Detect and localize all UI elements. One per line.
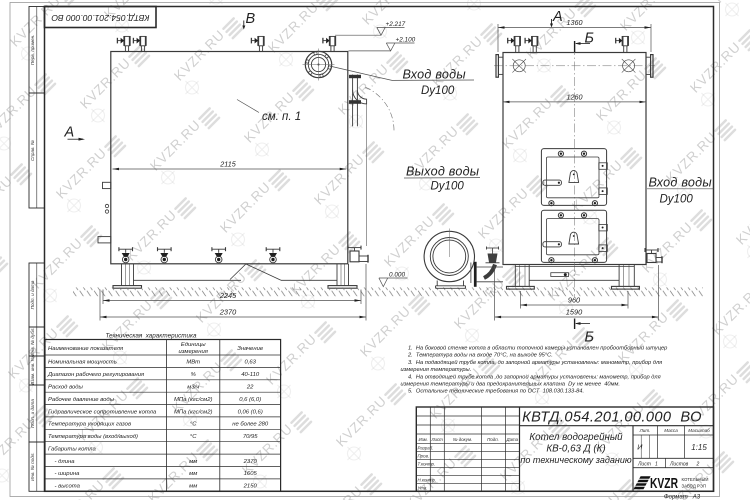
svg-text:KVZR.RU: KVZR.RU (499, 95, 555, 151)
svg-text:измерения температуры.: измерения температуры. (401, 367, 472, 373)
svg-text:Габариты котла: Габариты котла (48, 446, 96, 452)
svg-text:Разраб.: Разраб. (418, 445, 434, 450)
svg-text:МПа (кгс/см2): МПа (кгс/см2) (174, 397, 213, 403)
svg-text:Вход воды: Вход воды (649, 176, 713, 190)
svg-text:Dy100: Dy100 (660, 194, 694, 206)
svg-text:МПа (кгс/см2): МПа (кгс/см2) (174, 409, 213, 415)
svg-text:Температура воды (вход/выход): Температура воды (вход/выход) (48, 434, 138, 440)
svg-text:KVZR.RU: KVZR.RU (709, 281, 750, 337)
svg-text:Инв. № подл.: Инв. № подл. (30, 452, 35, 481)
svg-text:KVZR.RU: KVZR.RU (615, 309, 671, 365)
svg-text:Инв. № дубл.: Инв. № дубл. (30, 327, 35, 355)
svg-text:1605: 1605 (244, 471, 258, 477)
svg-text:22: 22 (246, 385, 254, 391)
svg-text:40-110: 40-110 (241, 372, 260, 378)
svg-text:Выход воды: Выход воды (406, 165, 480, 179)
svg-text:2115: 2115 (219, 160, 236, 169)
svg-text:KVZR.RU: KVZR.RU (171, 27, 227, 83)
svg-text:4. На отводящей трубе котла ,: 4. На отводящей трубе котла ,до запорной… (408, 373, 661, 380)
svg-text:измерения: измерения (178, 349, 208, 355)
svg-text:1:15: 1:15 (691, 443, 707, 452)
svg-text:А: А (552, 9, 563, 25)
svg-text:KVZR.RU: KVZR.RU (593, 67, 649, 123)
svg-text:Наименование показателя: Наименование показателя (48, 346, 124, 352)
svg-text:2150: 2150 (243, 484, 258, 490)
svg-text:Дата: Дата (506, 437, 519, 442)
svg-text:KVZR.RU: KVZR.RU (523, 5, 579, 61)
svg-text:КВТД.054.201.00.000 ВО: КВТД.054.201.00.000 ВО (51, 13, 149, 23)
svg-text:KVZR.RU: KVZR.RU (0, 173, 16, 229)
svg-text:Техническая характеристика: Техническая характеристика (106, 333, 197, 340)
svg-text:Котел водогрейный: Котел водогрейный (529, 432, 623, 443)
svg-text:2. Температура воды на входе: 2. Температура воды на входе 70°С, на вы… (407, 353, 553, 359)
svg-text:°С: °С (190, 422, 197, 428)
svg-text:измерения температуры и два пр: измерения температуры и два предохраните… (401, 382, 620, 388)
svg-text:2370: 2370 (219, 308, 237, 317)
svg-text:1. На боковой стенке котла в: 1. На боковой стенке котла в области топ… (408, 345, 667, 352)
svg-text:KVZR.RU: KVZR.RU (265, 0, 321, 56)
svg-text:1260: 1260 (567, 92, 583, 101)
svg-text:мм: мм (189, 459, 197, 465)
svg-text:1590: 1590 (566, 308, 583, 317)
svg-text:KVZR.RU: KVZR.RU (733, 191, 750, 247)
svg-text:№ докум.: № докум. (453, 437, 472, 442)
svg-text:70/95: 70/95 (243, 434, 258, 440)
svg-text:не более 280: не более 280 (232, 422, 269, 428)
svg-text:0,6 (6,0): 0,6 (6,0) (239, 397, 261, 403)
svg-text:Dy100: Dy100 (431, 181, 465, 193)
svg-text:КВТД.054.201.00.000 ВО: КВТД.054.201.00.000 ВО (522, 410, 702, 426)
svg-text:%: % (191, 372, 196, 378)
svg-text:Единицы: Единицы (181, 342, 206, 348)
svg-text:KVZR.RU: KVZR.RU (451, 275, 507, 331)
svg-text:KVZR.RU: KVZR.RU (333, 393, 389, 449)
svg-text:м3/ч: м3/ч (187, 385, 199, 391)
svg-text:Номинальная мощность: Номинальная мощность (48, 360, 117, 366)
svg-text:Б: Б (585, 330, 594, 346)
svg-text:Масштаб: Масштаб (688, 428, 710, 433)
svg-text:Рабочее давление воды: Рабочее давление воды (48, 397, 115, 403)
svg-text:Изм.: Изм. (419, 437, 428, 442)
svg-text:Диапазон рабочего регулировани: Диапазон рабочего регулирования (47, 372, 145, 378)
svg-text:KVZR.RU: KVZR.RU (0, 83, 40, 139)
svg-text:Т.контр.: Т.контр. (418, 461, 436, 466)
svg-text:KVZR.RU: KVZR.RU (687, 39, 743, 95)
svg-text:А: А (64, 125, 75, 141)
svg-text:KVZR.RU: KVZR.RU (53, 145, 109, 201)
svg-text:И: И (637, 443, 643, 452)
svg-text:2245: 2245 (219, 291, 237, 300)
svg-text:KVZR.RU: KVZR.RU (123, 207, 179, 263)
svg-text:Б: Б (585, 31, 594, 47)
svg-text:В: В (246, 11, 256, 27)
svg-text:- длина: - длина (48, 459, 75, 465)
svg-text:Лит.: Лит. (639, 428, 651, 433)
svg-text:Лист 1: Лист 1 (637, 462, 658, 468)
svg-text:Взам. инв. №: Взам. инв. № (30, 356, 35, 384)
svg-text:Температура уходящих газов: Температура уходящих газов (48, 422, 131, 428)
svg-text:Подп. и дата: Подп. и дата (30, 280, 35, 309)
svg-text:КОТЕЛЬНЫЙ: КОТЕЛЬНЫЙ (682, 477, 709, 482)
svg-text:1360: 1360 (567, 18, 583, 27)
svg-text:2370: 2370 (243, 459, 258, 465)
svg-text:Справ. №: Справ. № (30, 140, 35, 161)
svg-text:мм: мм (189, 471, 197, 477)
svg-text:Подп.: Подп. (487, 437, 499, 442)
svg-text:Пров.: Пров. (418, 453, 430, 458)
svg-text:Н.контр.: Н.контр. (418, 477, 437, 482)
svg-text:+2.217: +2.217 (386, 21, 406, 28)
svg-text:KVZR.RU: KVZR.RU (7, 0, 63, 50)
svg-text:KVZR.RU: KVZR.RU (311, 151, 367, 207)
svg-text:Лист: Лист (431, 437, 444, 442)
svg-text:KVZR.RU: KVZR.RU (639, 219, 695, 275)
svg-text:Формат А3: Формат А3 (664, 495, 701, 500)
svg-text:Расход воды: Расход воды (48, 385, 84, 391)
svg-text:ЗАВОД РЭП: ЗАВОД РЭП (682, 484, 707, 489)
svg-text:Масса: Масса (664, 428, 678, 433)
svg-text:KVZR: KVZR (650, 476, 678, 492)
svg-text:5. Остальные технические треб: 5. Остальные технические требования по О… (408, 389, 584, 395)
svg-text:Вход воды: Вход воды (403, 68, 467, 82)
svg-text:по техническому заданию: по техническому заданию (520, 455, 631, 465)
svg-text:мм: мм (189, 484, 197, 490)
svg-text:°С: °С (190, 434, 197, 440)
svg-text:МВт: МВт (186, 360, 200, 366)
svg-text:Dy100: Dy100 (421, 85, 455, 97)
svg-text:3. На подводящей трубе котла,: 3. На подводящей трубе котла, до запорно… (408, 359, 662, 366)
svg-text:Значение: Значение (237, 346, 264, 352)
svg-text:KVZR.RU: KVZR.RU (217, 179, 273, 235)
svg-text:960: 960 (568, 296, 581, 305)
svg-text:0,63: 0,63 (244, 360, 256, 366)
svg-text:KVZR.RU: KVZR.RU (357, 303, 413, 359)
svg-text:0.000: 0.000 (389, 272, 405, 279)
svg-text:0,06 (0,6): 0,06 (0,6) (238, 409, 263, 415)
svg-text:КВ-0,63 Д (К): КВ-0,63 Д (К) (546, 444, 605, 455)
svg-text:Утв.: Утв. (418, 485, 428, 490)
svg-text:KVZR.RU: KVZR.RU (147, 117, 203, 173)
svg-text:Перв. примен.: Перв. примен. (30, 35, 35, 66)
svg-text:KVZR.RU: KVZR.RU (77, 55, 133, 111)
svg-text:Листов 2: Листов 2 (669, 462, 700, 468)
svg-text:см. п. 1: см. п. 1 (262, 111, 301, 123)
svg-text:Гидравлическое сопротивление к: Гидравлическое сопротивление котла (48, 409, 157, 415)
svg-text:Подп. и дата: Подп. и дата (30, 399, 35, 428)
svg-text:- ширина: - ширина (48, 471, 80, 477)
svg-text:+2.100: +2.100 (396, 37, 416, 44)
svg-text:- высота: - высота (48, 484, 81, 490)
